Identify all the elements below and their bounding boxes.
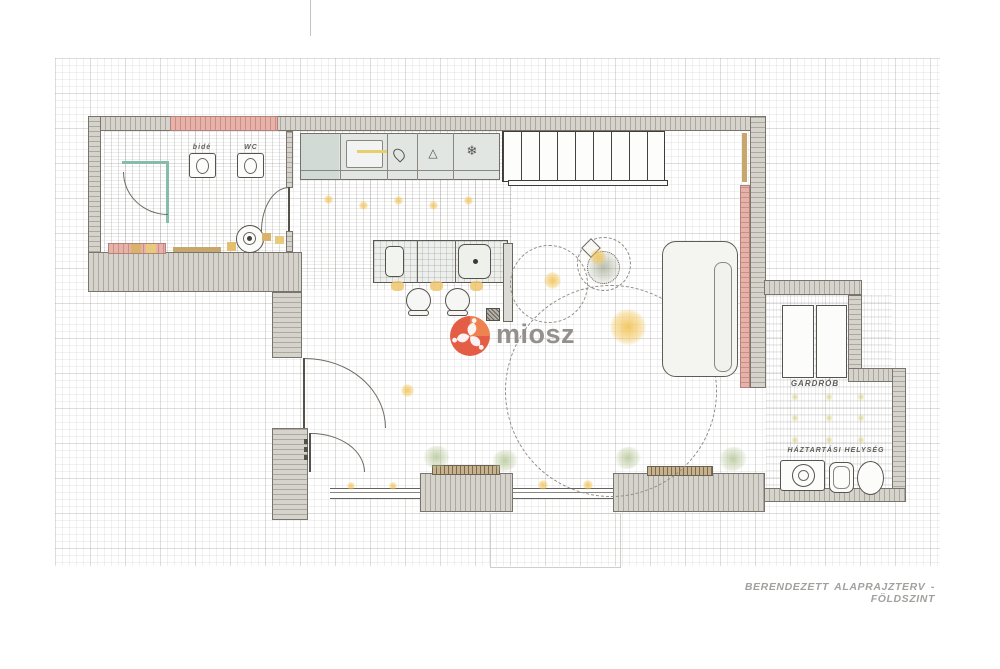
kitchen-counter-left-section <box>301 134 339 179</box>
sofa-backrest <box>714 262 732 372</box>
entrance-marker <box>304 455 308 460</box>
counter-front-line <box>301 170 499 171</box>
bath-accessory <box>275 236 284 244</box>
shelf-right-wall <box>742 133 747 182</box>
spot-light <box>825 393 833 401</box>
counter-divider <box>453 133 454 180</box>
island-divider <box>455 240 456 283</box>
spot-light <box>825 436 833 444</box>
counter-divider <box>417 133 418 180</box>
washing-machine-drum-inner <box>798 470 809 481</box>
logo-text: miosz <box>496 321 575 348</box>
pendant-light <box>430 281 443 291</box>
wardrobe-door-track <box>508 180 668 186</box>
utility-room-label: HÁZTARTÁSI HELYSÉG <box>781 447 891 454</box>
radiator-west <box>432 465 500 475</box>
downlight <box>359 201 368 210</box>
downlight <box>429 201 438 210</box>
bidet-bowl <box>196 158 209 174</box>
bathroom-door-leaf <box>288 187 290 231</box>
extractor-hood-icon: △ <box>424 146 442 162</box>
utility-sink-basin <box>833 466 850 489</box>
spot-light <box>791 436 799 444</box>
wall-extension-top <box>764 280 862 295</box>
wall-right <box>750 116 766 388</box>
drawing-caption: BERENDEZETT ALAPRAJZTERV - FÖLDSZINT <box>690 581 935 605</box>
downlight <box>538 480 548 490</box>
counter-divider <box>387 133 388 180</box>
under-cabinet-light <box>357 150 387 153</box>
builtin-wardrobe <box>502 131 665 182</box>
counter-divider <box>340 133 341 180</box>
spot-light <box>825 414 833 422</box>
downlight <box>394 196 403 205</box>
downlight <box>464 196 473 205</box>
bar-stool-back <box>408 310 429 316</box>
bidet-label: bidé <box>182 144 222 151</box>
wall-left-lower-upper <box>272 292 302 358</box>
interior-door-leaf <box>303 358 305 428</box>
bath-mat <box>146 244 156 253</box>
spot-light <box>857 414 865 422</box>
entrance-marker <box>304 439 308 444</box>
floor-plan-canvas: △ ❄ bidé WC <box>0 0 1000 669</box>
downlight <box>347 482 355 490</box>
downlight <box>583 480 593 490</box>
logo-emblem-icon <box>449 315 491 362</box>
island-divider <box>417 240 418 283</box>
shower-glass-top <box>122 161 169 164</box>
toilet-bowl <box>244 158 257 174</box>
downlight <box>389 482 397 490</box>
wall-bottom-pier-1 <box>420 473 513 512</box>
wall-extension-right-upper <box>848 295 862 375</box>
wc-label: WC <box>236 144 266 151</box>
downlight <box>324 195 333 204</box>
spot-light <box>791 414 799 422</box>
downlight <box>401 384 414 397</box>
island-drain-dot <box>473 259 478 264</box>
terrace-outline <box>490 513 621 568</box>
pendant-light <box>391 281 404 291</box>
wardrobe-room-label: GARDRÓB <box>779 379 851 388</box>
spot-light <box>857 393 865 401</box>
wall-bathroom-partition-upper <box>286 131 293 188</box>
utility-basin-oval <box>857 461 884 495</box>
fridge-snowflake-icon: ❄ <box>462 144 482 162</box>
bathroom-shelf <box>173 247 221 252</box>
spot-light <box>791 393 799 401</box>
bath-accessory <box>227 242 236 251</box>
washbasin-drain <box>247 236 252 241</box>
pouf-yellow <box>544 272 561 289</box>
pouf-yellow-large <box>610 309 646 345</box>
logo-watermark: miosz <box>449 313 569 361</box>
wardrobe-unit <box>816 305 847 378</box>
entrance-door-leaf <box>309 433 311 472</box>
wardrobe-unit <box>782 305 814 378</box>
section-marker-line <box>310 0 311 36</box>
wall-right-pink-lining <box>740 185 750 388</box>
wall-top-pink-segment <box>170 116 278 131</box>
pendant-light <box>470 281 483 291</box>
accent-light <box>590 249 606 265</box>
kitchen-sink <box>346 140 383 168</box>
wall-bathroom-partition-lower <box>286 231 293 252</box>
wall-left-lower-pier <box>272 428 308 520</box>
bath-accessory <box>262 233 271 241</box>
spot-light <box>857 436 865 444</box>
bath-mat <box>131 244 141 253</box>
wall-bathroom-bottom-band <box>88 252 302 292</box>
wall-extension-right-lower <box>892 368 906 502</box>
entrance-marker <box>304 447 308 452</box>
window-south-west <box>330 488 420 499</box>
cutting-board <box>385 246 404 277</box>
